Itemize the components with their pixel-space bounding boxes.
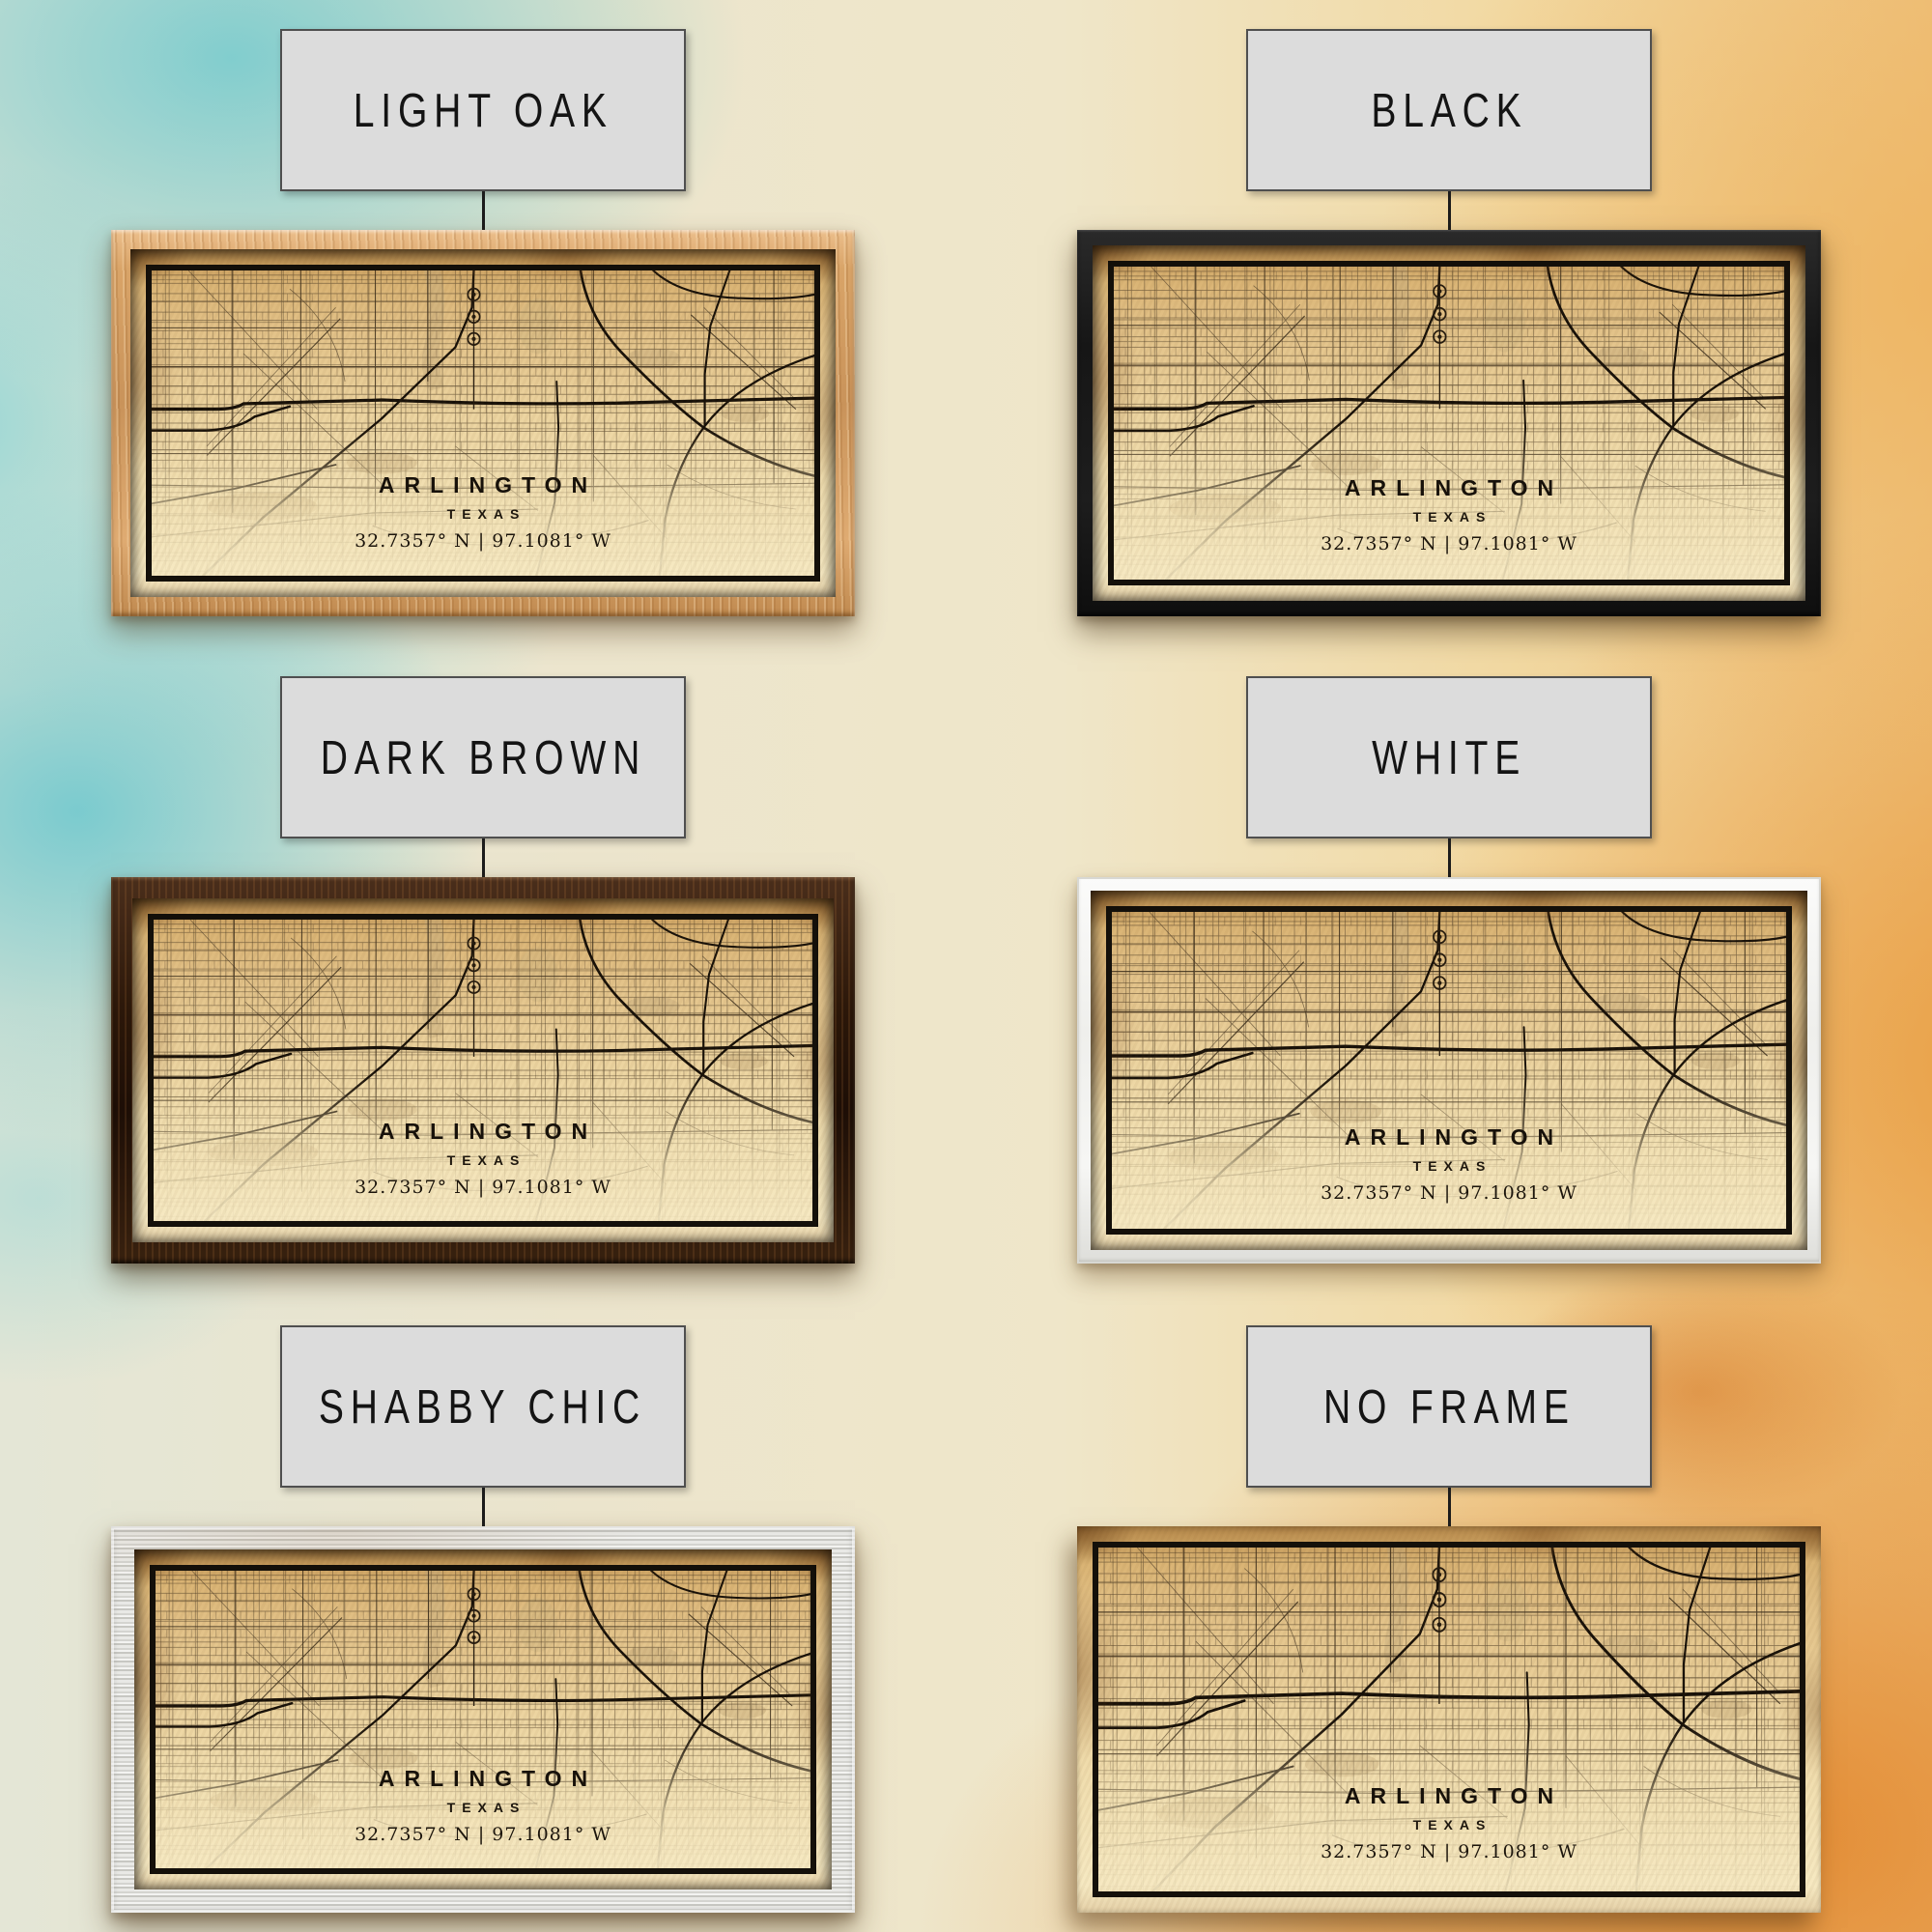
frame-white: ARLINGTON TEXAS 32.7357° N | 97.1081° W [1077, 877, 1821, 1264]
frame-shabby-chic: ARLINGTON TEXAS 32.7357° N | 97.1081° W [111, 1526, 855, 1913]
connector-line [1448, 1488, 1451, 1526]
city-name: ARLINGTON [1093, 475, 1805, 501]
frame-black: ARLINGTON TEXAS 32.7357° N | 97.1081° W [1077, 230, 1821, 616]
coordinates-text: 32.7357° N | 97.1081° W [1077, 1841, 1821, 1862]
coordinates-text: 32.7357° N | 97.1081° W [132, 1177, 834, 1198]
variant-label-white: WHITE [1246, 676, 1652, 838]
variant-cell-white: WHITE ARLINGTON TEXAS 32.7357° N | 97.10… [966, 647, 1932, 1296]
variant-label-black: BLACK [1246, 29, 1652, 191]
city-name: ARLINGTON [134, 1766, 832, 1792]
variant-label-light-oak: LIGHT OAK [280, 29, 686, 191]
frame-dark-brown: ARLINGTON TEXAS 32.7357° N | 97.1081° W [111, 877, 855, 1264]
state-name: TEXAS [132, 1152, 834, 1168]
variant-cell-light-oak: LIGHT OAK ARLINGTON TEXAS 32.7357° N | 9… [0, 0, 966, 647]
variant-cell-dark-brown: DARK BROWN ARLINGTON TEXAS 32.7357° N | … [0, 647, 966, 1296]
print-caption: ARLINGTON TEXAS 32.7357° N | 97.1081° W [134, 1766, 832, 1845]
city-name: ARLINGTON [1091, 1124, 1807, 1151]
variant-label-text: WHITE [1372, 729, 1526, 784]
print-caption: ARLINGTON TEXAS 32.7357° N | 97.1081° W [1091, 1124, 1807, 1204]
state-name: TEXAS [1077, 1817, 1821, 1833]
print-caption: ARLINGTON TEXAS 32.7357° N | 97.1081° W [1077, 1783, 1821, 1862]
map-print: ARLINGTON TEXAS 32.7357° N | 97.1081° W [1077, 1526, 1821, 1913]
print-caption: ARLINGTON TEXAS 32.7357° N | 97.1081° W [132, 1119, 834, 1198]
variant-grid: LIGHT OAK ARLINGTON TEXAS 32.7357° N | 9… [0, 0, 1932, 1932]
connector-line [1448, 191, 1451, 230]
state-name: TEXAS [130, 506, 836, 522]
variant-label-no-frame: NO FRAME [1246, 1325, 1652, 1488]
city-name: ARLINGTON [130, 472, 836, 498]
frame-no-frame: ARLINGTON TEXAS 32.7357° N | 97.1081° W [1077, 1526, 1821, 1913]
city-name: ARLINGTON [1077, 1783, 1821, 1809]
map-print: ARLINGTON TEXAS 32.7357° N | 97.1081° W [132, 898, 834, 1242]
state-name: TEXAS [1091, 1158, 1807, 1174]
variant-label-dark-brown: DARK BROWN [280, 676, 686, 838]
variant-label-shabby-chic: SHABBY CHIC [280, 1325, 686, 1488]
map-print: ARLINGTON TEXAS 32.7357° N | 97.1081° W [134, 1549, 832, 1889]
state-name: TEXAS [134, 1800, 832, 1815]
map-print: ARLINGTON TEXAS 32.7357° N | 97.1081° W [1093, 245, 1805, 601]
coordinates-text: 32.7357° N | 97.1081° W [1093, 533, 1805, 554]
state-name: TEXAS [1093, 509, 1805, 525]
coordinates-text: 32.7357° N | 97.1081° W [1091, 1182, 1807, 1204]
variant-label-text: LIGHT OAK [353, 82, 612, 137]
connector-line [482, 838, 485, 877]
map-print: ARLINGTON TEXAS 32.7357° N | 97.1081° W [130, 249, 836, 597]
map-print: ARLINGTON TEXAS 32.7357° N | 97.1081° W [1091, 891, 1807, 1250]
city-name: ARLINGTON [132, 1119, 834, 1145]
coordinates-text: 32.7357° N | 97.1081° W [134, 1824, 832, 1845]
variant-label-text: NO FRAME [1323, 1378, 1576, 1434]
connector-line [1448, 838, 1451, 877]
variant-cell-shabby-chic: SHABBY CHIC ARLINGTON TEXAS 32.7357° N |… [0, 1296, 966, 1932]
variant-label-text: DARK BROWN [320, 729, 645, 784]
frame-light-oak: ARLINGTON TEXAS 32.7357° N | 97.1081° W [111, 230, 855, 616]
print-caption: ARLINGTON TEXAS 32.7357° N | 97.1081° W [130, 472, 836, 552]
connector-line [482, 1488, 485, 1526]
coordinates-text: 32.7357° N | 97.1081° W [130, 530, 836, 552]
variant-label-text: BLACK [1371, 82, 1527, 137]
connector-line [482, 191, 485, 230]
variant-cell-no-frame: NO FRAME ARLINGTON TEXAS 32.7357° N | 97… [966, 1296, 1932, 1932]
variant-cell-black: BLACK ARLINGTON TEXAS 32.7357° N | 97.10… [966, 0, 1932, 647]
print-caption: ARLINGTON TEXAS 32.7357° N | 97.1081° W [1093, 475, 1805, 554]
variant-label-text: SHABBY CHIC [319, 1378, 646, 1434]
